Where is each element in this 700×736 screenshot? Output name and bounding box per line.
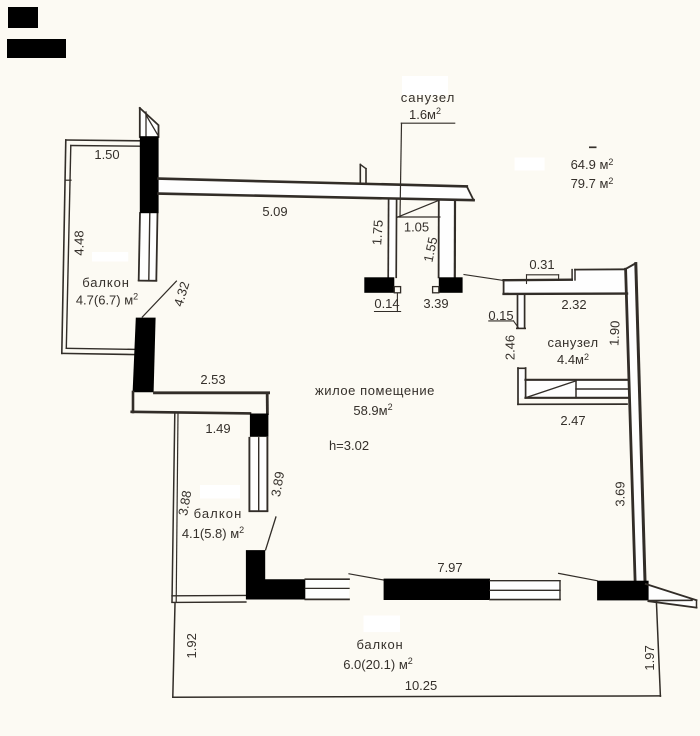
svg-text:0.31: 0.31 bbox=[529, 257, 554, 272]
svg-text:1.90: 1.90 bbox=[606, 320, 622, 346]
svg-text:жилое помещение: жилое помещение bbox=[315, 383, 435, 398]
svg-text:4.7(6.7) м2: 4.7(6.7) м2 bbox=[76, 292, 138, 308]
svg-text:0.14: 0.14 bbox=[374, 296, 399, 311]
svg-text:58.9м2: 58.9м2 bbox=[353, 402, 392, 418]
svg-text:2.47: 2.47 bbox=[560, 413, 585, 428]
svg-text:1.92: 1.92 bbox=[184, 633, 199, 658]
svg-text:h=3.02: h=3.02 bbox=[329, 438, 369, 453]
svg-text:1.05: 1.05 bbox=[404, 220, 429, 235]
svg-text:санузел: санузел bbox=[401, 90, 456, 105]
svg-text:санузел: санузел bbox=[547, 335, 598, 350]
svg-text:3.39: 3.39 bbox=[423, 296, 448, 311]
svg-text:балкон: балкон bbox=[194, 506, 243, 521]
svg-text:1.50: 1.50 bbox=[94, 147, 119, 162]
svg-text:1.75: 1.75 bbox=[369, 219, 386, 245]
svg-text:4.1(5.8) м2: 4.1(5.8) м2 bbox=[182, 525, 244, 541]
svg-text:64.9 м2: 64.9 м2 bbox=[571, 157, 614, 172]
svg-text:4.48: 4.48 bbox=[71, 230, 86, 255]
svg-text:5.09: 5.09 bbox=[262, 204, 287, 219]
svg-text:6.0(20.1) м2: 6.0(20.1) м2 bbox=[343, 656, 413, 672]
svg-text:10.25: 10.25 bbox=[405, 678, 438, 693]
svg-text:0.15: 0.15 bbox=[488, 308, 513, 323]
svg-text:2.46: 2.46 bbox=[503, 335, 518, 360]
svg-text:7.97: 7.97 bbox=[437, 560, 462, 575]
svg-text:79.7 м2: 79.7 м2 bbox=[571, 176, 614, 191]
svg-text:3.69: 3.69 bbox=[612, 481, 627, 506]
svg-text:2.32: 2.32 bbox=[561, 297, 586, 312]
svg-text:балкон: балкон bbox=[356, 637, 403, 652]
svg-text:балкон: балкон bbox=[82, 275, 130, 290]
svg-text:2.53: 2.53 bbox=[200, 372, 225, 387]
svg-text:1.97: 1.97 bbox=[642, 645, 657, 670]
svg-text:1.49: 1.49 bbox=[205, 421, 230, 436]
